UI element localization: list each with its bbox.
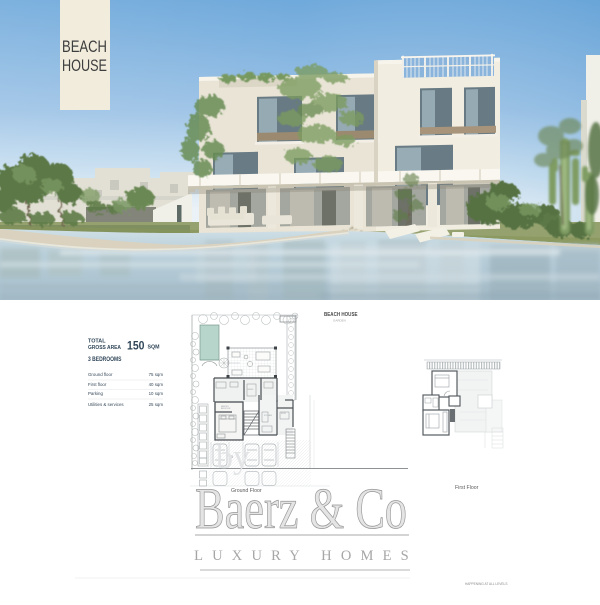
svg-text:by: by	[216, 439, 250, 476]
svg-text:KITCHEN: KITCHEN	[264, 415, 273, 417]
svg-text:150: 150	[127, 338, 145, 352]
svg-text:3 BEDROOMS: 3 BEDROOMS	[88, 357, 122, 363]
svg-text:75 sqm: 75 sqm	[149, 372, 164, 377]
svg-text:TOTAL: TOTAL	[88, 338, 106, 344]
svg-text:DINING: DINING	[247, 389, 254, 391]
svg-text:Ground floor: Ground floor	[88, 372, 113, 377]
svg-text:GARDEN: GARDEN	[333, 319, 346, 323]
svg-text:10 sqm: 10 sqm	[149, 391, 164, 396]
svg-text:GROSS AREA: GROSS AREA	[88, 345, 121, 351]
svg-text:HAPPENING AT ALL LEVELS: HAPPENING AT ALL LEVELS	[465, 582, 507, 586]
svg-text:Parking: Parking	[88, 391, 103, 396]
svg-text:Utilities & services: Utilities & services	[88, 402, 124, 407]
svg-text:HOUSE: HOUSE	[62, 57, 107, 75]
svg-text:40 sqm: 40 sqm	[149, 382, 164, 387]
svg-text:First Floor: First Floor	[455, 485, 479, 491]
svg-text:ENTR: ENTR	[281, 413, 287, 415]
svg-text:25 sqm: 25 sqm	[149, 402, 164, 407]
svg-text:BEDROOM: BEDROOM	[221, 408, 231, 410]
svg-text:BEACH: BEACH	[62, 38, 107, 56]
svg-text:Baerz & Co: Baerz & Co	[195, 476, 407, 541]
svg-text:BEACH HOUSE: BEACH HOUSE	[324, 312, 358, 318]
svg-text:LUXURY HOMES: LUXURY HOMES	[194, 548, 418, 564]
svg-text:SQM: SQM	[148, 345, 160, 351]
svg-text:First floor: First floor	[88, 382, 107, 387]
